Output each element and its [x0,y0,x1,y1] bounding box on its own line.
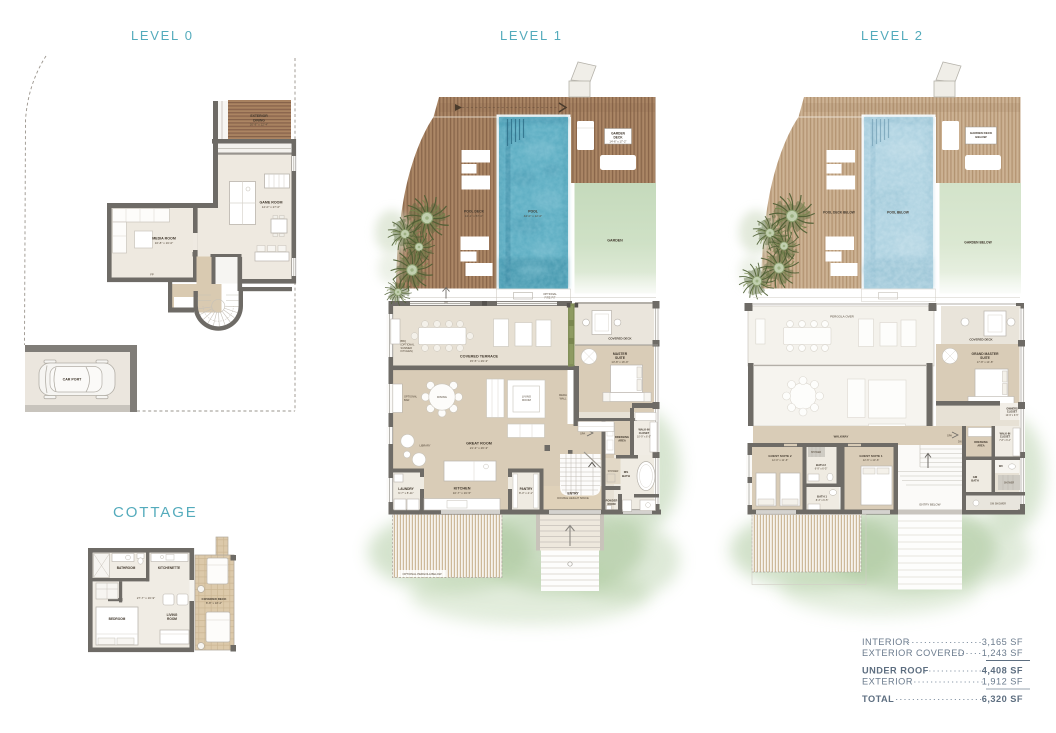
svg-text:GARDEN BELOW: GARDEN BELOW [964,241,992,245]
svg-text:13'-8" x 16'-9": 13'-8" x 16'-9" [611,360,628,364]
svg-text:SHOWER: SHOWER [1004,483,1015,485]
svg-text:20'-8" x 12'-4": 20'-8" x 12'-4" [250,123,268,127]
svg-text:4,408 SF: 4,408 SF [982,666,1023,676]
svg-text:KITCHENETTE: KITCHENETTE [158,566,180,570]
svg-text:OPTIONAL: OPTIONAL [404,395,418,399]
svg-text:AREA: AREA [977,443,984,447]
svg-text:EXTERIOR: EXTERIOR [250,114,268,118]
svg-text:1,243 SF: 1,243 SF [982,648,1023,658]
svg-text:COVERED TERRACE: COVERED TERRACE [460,355,499,359]
svg-text:27'-7" x 16'-9": 27'-7" x 16'-9" [137,596,155,600]
svg-text:ENTRY: ENTRY [567,492,579,496]
svg-text:SHOWER: SHOWER [811,452,822,454]
svg-text:(A): (A) [444,300,448,304]
svg-text:6'-9" x 6'-5": 6'-9" x 6'-5" [815,468,828,471]
svg-text:KITCHEN): KITCHEN) [401,349,413,353]
svg-text:8'-3" x 6'-5": 8'-3" x 6'-5" [816,499,829,502]
svg-text:DRESSING: DRESSING [974,440,988,444]
svg-text:INTERIOR: INTERIOR [862,637,910,647]
svg-text:COVERED DECK: COVERED DECK [608,337,632,341]
svg-text:SPA: SPA [947,434,952,438]
svg-text:BBQ: BBQ [401,339,406,343]
svg-text:PERGOLA OVER: PERGOLA OVER [830,315,855,319]
svg-text:COTTAGE: COTTAGE [113,504,198,521]
svg-text:DN: DN [958,441,962,444]
svg-text:WALL: WALL [560,397,567,400]
svg-text:CLOSET: CLOSET [639,431,650,435]
svg-text:1,912 SF: 1,912 SF [982,677,1023,687]
svg-text:16'-8" x 16'-0": 16'-8" x 16'-0" [155,241,173,245]
svg-text:DOUBLE HEIGHT SPACE: DOUBLE HEIGHT SPACE [557,496,589,500]
svg-text:10'-9" x 6'-5": 10'-9" x 6'-5" [1006,415,1019,417]
svg-text:GARDEN: GARDEN [607,239,623,243]
svg-text:SUMMER: SUMMER [401,346,413,350]
svg-text:GREAT ROOM: GREAT ROOM [466,442,492,446]
svg-text:10'-7" x 16'-5": 10'-7" x 16'-5" [453,491,471,495]
svg-text:6'-7" x 8'-11": 6'-7" x 8'-11" [398,491,413,495]
svg-text:LEVEL 1: LEVEL 1 [500,28,563,43]
svg-text:7'-8" x 6'-4": 7'-8" x 6'-4" [999,440,1011,442]
svg-text:COVERED DECK: COVERED DECK [969,338,993,342]
svg-text:FP: FP [150,273,154,277]
svg-text:15'-5" x 29'-3": 15'-5" x 29'-3" [470,359,488,363]
svg-text:GM SHOWER: GM SHOWER [990,503,1006,506]
svg-text:6,320 SF: 6,320 SF [982,694,1023,704]
svg-text:WALKWAY: WALKWAY [834,435,849,439]
svg-text:AREA: AREA [618,438,626,442]
svg-text:EXTERIOR COVERED: EXTERIOR COVERED [862,648,965,658]
svg-text:POOL: POOL [528,210,538,214]
svg-text:21'-3" x 26'-3": 21'-3" x 26'-3" [470,446,488,450]
svg-text:GUEST SUITE 2: GUEST SUITE 2 [768,454,791,458]
svg-text:UNDER ROOF: UNDER ROOF [862,666,929,676]
svg-text:OPTIONAL: OPTIONAL [543,292,557,296]
svg-text:POOL DECK BELOW: POOL DECK BELOW [823,211,855,215]
svg-text:TOTAL: TOTAL [862,694,894,704]
svg-text:GUEST SUITE 1: GUEST SUITE 1 [859,454,882,458]
svg-text:BAR: BAR [404,398,409,402]
svg-text:BATH 1: BATH 1 [817,495,827,499]
svg-text:ENTRY BELOW: ENTRY BELOW [920,503,941,507]
svg-text:BATHROOM: BATHROOM [117,566,136,570]
svg-text:EXTERIOR: EXTERIOR [862,677,913,687]
svg-text:BATH: BATH [622,474,630,478]
svg-text:WALK-IN: WALK-IN [638,428,649,432]
svg-text:CAR PORT: CAR PORT [63,378,83,382]
svg-text:14'-2" x 57'-0": 14'-2" x 57'-0" [465,214,483,218]
svg-text:12'-0" x 11'-6": 12'-0" x 11'-6" [772,458,788,462]
svg-text:14'-6" x 17'-2": 14'-6" x 17'-2" [609,139,626,143]
svg-text:SPA: SPA [580,432,585,436]
svg-text:OPTIONAL PERGOLA BELOW: OPTIONAL PERGOLA BELOW [402,572,441,576]
svg-text:CLOSET: CLOSET [1000,436,1011,439]
svg-text:ROOM: ROOM [167,617,177,621]
svg-text:(OPTIONAL: (OPTIONAL [401,342,416,346]
svg-text:12'-6" x 13'-6": 12'-6" x 13'-6" [863,458,880,462]
svg-text:17'-8" x 14'-8": 17'-8" x 14'-8" [977,360,994,364]
svg-text:POWDER: POWDER [606,499,618,503]
svg-text:44'-0" x 12'-0": 44'-0" x 12'-0" [524,214,542,218]
svg-text:CLOSET: CLOSET [1007,411,1018,414]
svg-text:BATH 2: BATH 2 [816,463,826,467]
svg-text:DINING: DINING [437,395,447,399]
svg-text:BEDROOM: BEDROOM [109,617,126,621]
svg-text:POOL DECK: POOL DECK [464,210,485,214]
svg-text:SHOWER: SHOWER [608,470,619,473]
svg-text:POOL BELOW: POOL BELOW [887,211,909,215]
svg-text:3,165 SF: 3,165 SF [982,637,1023,647]
svg-text:14'-0" x 27'-0": 14'-0" x 27'-0" [262,205,280,209]
svg-text:8'-3" x 4'-1": 8'-3" x 4'-1" [519,491,533,495]
svg-text:10'-9" x 6'-5": 10'-9" x 6'-5" [637,435,651,438]
svg-text:BELOW: BELOW [975,135,986,139]
svg-text:WC: WC [999,465,1003,468]
svg-text:LIBRARY: LIBRARY [419,444,430,448]
svg-text:LEVEL 2: LEVEL 2 [861,28,924,43]
svg-text:SUITE: SUITE [980,356,991,360]
svg-text:LEVEL 0: LEVEL 0 [131,28,194,43]
svg-text:BATH: BATH [971,479,979,483]
svg-text:DRESSING: DRESSING [615,435,629,439]
svg-text:ROOM: ROOM [522,398,531,402]
svg-text:8'-8" x 18'-2": 8'-8" x 18'-2" [206,601,222,605]
